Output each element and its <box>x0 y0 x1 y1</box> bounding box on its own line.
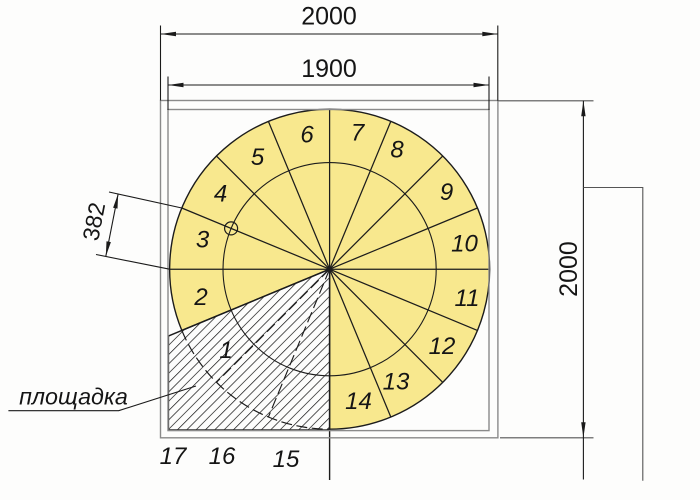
svg-text:площадка: площадка <box>19 384 128 410</box>
svg-text:13: 13 <box>383 368 410 395</box>
svg-text:2000: 2000 <box>555 241 583 297</box>
svg-text:2000: 2000 <box>301 3 357 31</box>
svg-text:12: 12 <box>429 333 456 360</box>
svg-text:4: 4 <box>214 180 227 207</box>
svg-text:7: 7 <box>351 119 366 146</box>
svg-text:6: 6 <box>300 121 314 148</box>
svg-text:16: 16 <box>209 443 236 470</box>
svg-text:3: 3 <box>196 226 210 253</box>
svg-text:17: 17 <box>160 443 188 470</box>
svg-text:1: 1 <box>219 337 232 364</box>
svg-text:9: 9 <box>440 179 453 206</box>
svg-text:14: 14 <box>345 388 372 415</box>
svg-text:5: 5 <box>251 144 265 171</box>
svg-text:8: 8 <box>390 136 404 163</box>
svg-text:11: 11 <box>455 285 480 312</box>
svg-text:1900: 1900 <box>301 55 357 83</box>
svg-text:15: 15 <box>273 446 300 473</box>
svg-text:2: 2 <box>193 284 207 311</box>
svg-text:10: 10 <box>451 230 478 257</box>
